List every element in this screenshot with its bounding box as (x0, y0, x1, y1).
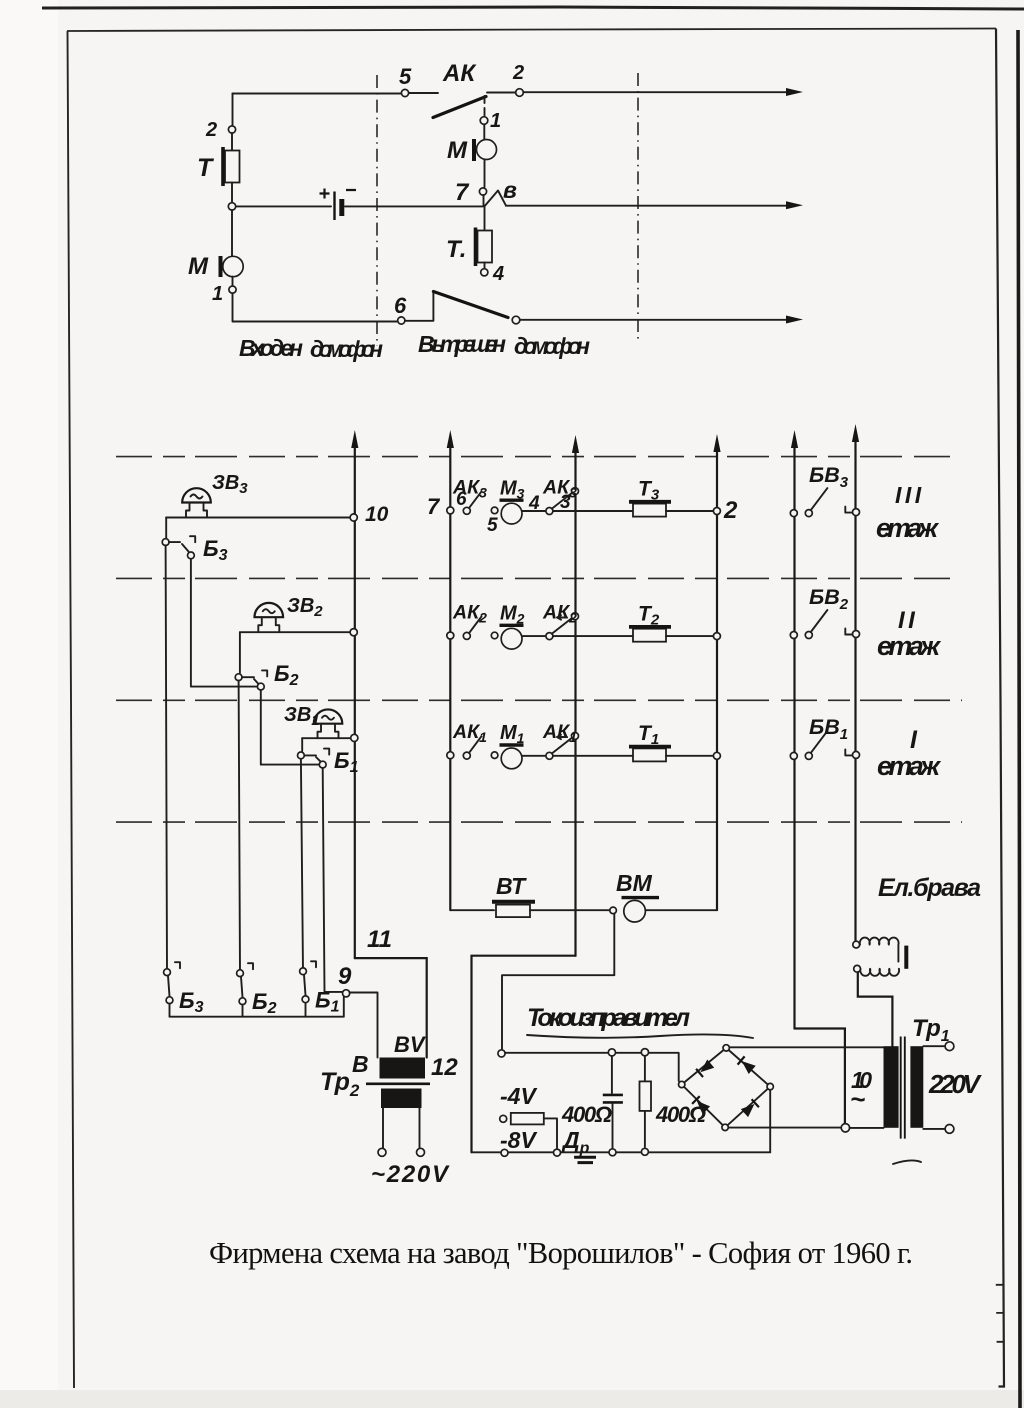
svg-text:5: 5 (487, 515, 498, 536)
svg-text:Фирмена схема на завод "Вороши: Фирмена схема на завод "Ворошилов" - Соф… (209, 1236, 913, 1270)
svg-text:11: 11 (367, 926, 392, 953)
svg-text:3: 3 (560, 492, 571, 513)
svg-text:10: 10 (365, 503, 389, 526)
svg-text:в: в (503, 177, 517, 203)
svg-text:12: 12 (431, 1054, 458, 1081)
svg-text:Токоизправител: Токоизправител (527, 1004, 690, 1032)
svg-text:домофон: домофон (310, 336, 383, 362)
svg-text:домофон: домофон (514, 333, 590, 359)
svg-text:220V: 220V (928, 1069, 983, 1099)
svg-text:1: 1 (490, 110, 501, 132)
svg-text:7: 7 (427, 494, 441, 519)
svg-text:7: 7 (455, 179, 470, 206)
svg-text:II: II (898, 607, 918, 634)
svg-text:етаж: етаж (877, 631, 942, 661)
svg-text:М: М (447, 137, 468, 164)
svg-text:6: 6 (456, 489, 467, 510)
svg-text:4: 4 (492, 263, 504, 285)
svg-text:1: 1 (212, 283, 223, 305)
svg-text:9: 9 (338, 963, 352, 990)
svg-text:АК: АК (442, 60, 477, 87)
svg-text:Ел.брава: Ел.брава (878, 874, 981, 902)
svg-text:Входен: Входен (239, 335, 303, 361)
svg-text:етаж: етаж (877, 751, 942, 781)
svg-text:III: III (895, 482, 925, 508)
svg-text:4: 4 (528, 493, 540, 514)
svg-text:I: I (910, 726, 918, 754)
svg-text:2: 2 (205, 119, 217, 141)
svg-text:ВМ: ВМ (616, 870, 653, 896)
svg-text:~: ~ (850, 1084, 865, 1114)
svg-text:~220V: ~220V (371, 1161, 450, 1188)
svg-text:М: М (188, 253, 209, 280)
svg-text:етаж: етаж (876, 513, 940, 543)
svg-text:2: 2 (723, 497, 738, 524)
svg-text:400Ω: 400Ω (561, 1102, 612, 1127)
svg-text:Вътрешен: Вътрешен (418, 331, 506, 357)
svg-text:В: В (352, 1051, 369, 1077)
svg-text:Т.: Т. (446, 236, 466, 263)
svg-text:5: 5 (399, 64, 412, 89)
svg-text:ВV: ВV (394, 1032, 427, 1057)
svg-text:400Ω: 400Ω (655, 1102, 706, 1127)
svg-text:6: 6 (394, 293, 407, 318)
svg-text:-4V: -4V (500, 1083, 537, 1109)
svg-text:2: 2 (512, 62, 524, 84)
svg-text:ВТ: ВТ (496, 873, 527, 899)
